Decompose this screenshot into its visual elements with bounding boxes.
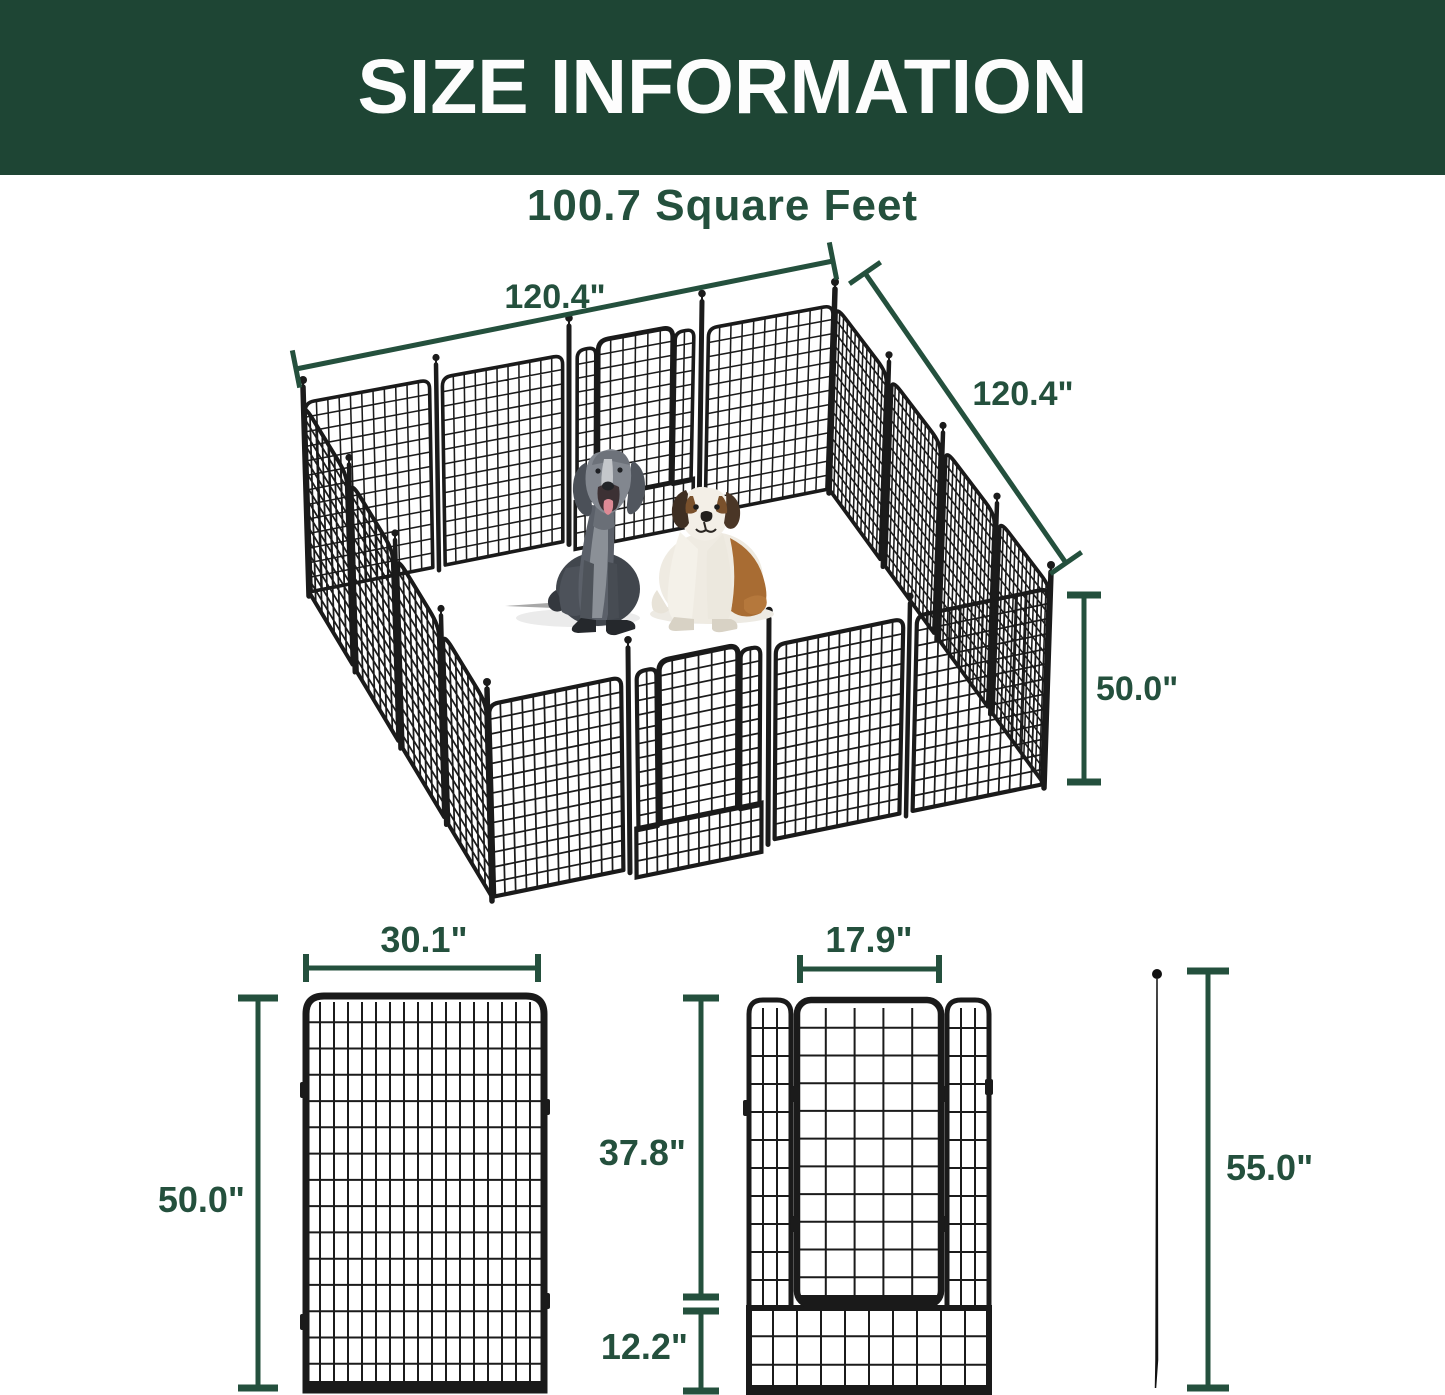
svg-text:55.0": 55.0" <box>1226 1147 1313 1188</box>
svg-text:50.0": 50.0" <box>158 1179 245 1220</box>
svg-text:50.0": 50.0" <box>1096 670 1178 708</box>
svg-text:37.8": 37.8" <box>599 1132 686 1173</box>
svg-text:12.2": 12.2" <box>601 1326 688 1367</box>
svg-text:17.9": 17.9" <box>825 919 912 960</box>
svg-text:120.4": 120.4" <box>504 278 605 316</box>
svg-text:30.1": 30.1" <box>380 919 467 960</box>
svg-text:120.4": 120.4" <box>972 375 1073 413</box>
